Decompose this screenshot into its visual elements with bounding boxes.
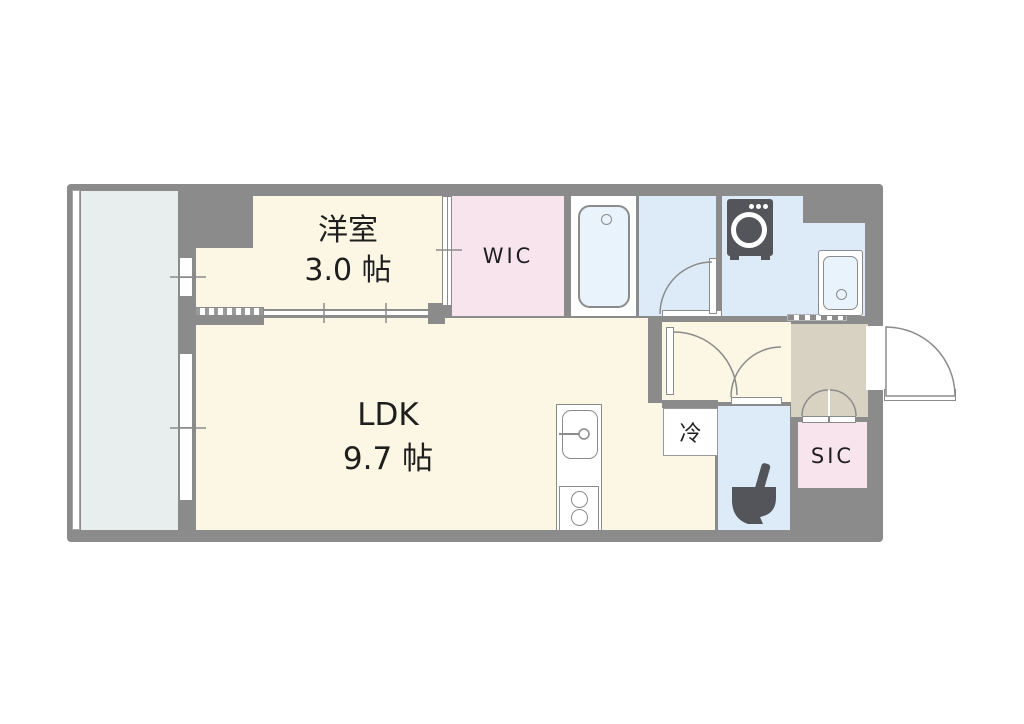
toilet-door-leaf xyxy=(731,397,782,405)
western-room-size: 3.0 帖 xyxy=(304,254,391,289)
western-room-label: 洋室 3.0 帖 xyxy=(258,206,438,296)
wic-label: WIC xyxy=(452,243,564,269)
hall-door-leaf xyxy=(666,327,674,395)
wall-stub-left xyxy=(195,316,264,325)
floorplan-canvas: 冷 洋室 xyxy=(0,0,1024,724)
sic-label: SIC xyxy=(798,443,867,469)
window-small-icon xyxy=(179,257,193,297)
western-room-lower-left xyxy=(196,248,256,313)
wall-hall-fridge xyxy=(662,400,718,408)
sliding-door-western-ldk xyxy=(264,309,428,317)
window-large-icon xyxy=(179,353,193,501)
entrance-opening xyxy=(866,326,884,390)
bifold-door-slab-right xyxy=(829,416,856,423)
hatched-opening-icon xyxy=(195,307,264,316)
kitchen-sink-icon xyxy=(562,410,598,459)
balcony xyxy=(81,191,178,530)
balcony-railing xyxy=(72,190,80,530)
shower-door-leaf xyxy=(709,258,717,314)
toilet-room xyxy=(718,406,790,530)
ldk-name: LDK xyxy=(357,398,418,434)
entrance-door-leaf xyxy=(884,389,956,401)
bifold-door-slab-left xyxy=(802,416,829,423)
shower-room xyxy=(639,196,716,316)
entrance-genkan xyxy=(791,324,868,417)
entrance-door-swing-icon xyxy=(886,327,955,396)
western-room-name: 洋室 xyxy=(318,214,378,249)
bathtub-icon xyxy=(578,205,630,308)
kitchen-counter xyxy=(556,404,602,531)
sliding-door-western-wic xyxy=(442,196,452,306)
vanity-sink-icon xyxy=(818,250,863,316)
refrigerator-label: 冷 xyxy=(679,416,701,448)
ldk-label: LDK 9.7 帖 xyxy=(298,398,478,478)
hallway xyxy=(662,322,791,402)
wall-stub-right xyxy=(428,303,445,324)
refrigerator-space: 冷 xyxy=(663,408,718,456)
gas-stove-icon xyxy=(559,486,599,531)
ldk-size: 9.7 帖 xyxy=(343,442,433,478)
washing-machine-icon xyxy=(727,199,773,256)
